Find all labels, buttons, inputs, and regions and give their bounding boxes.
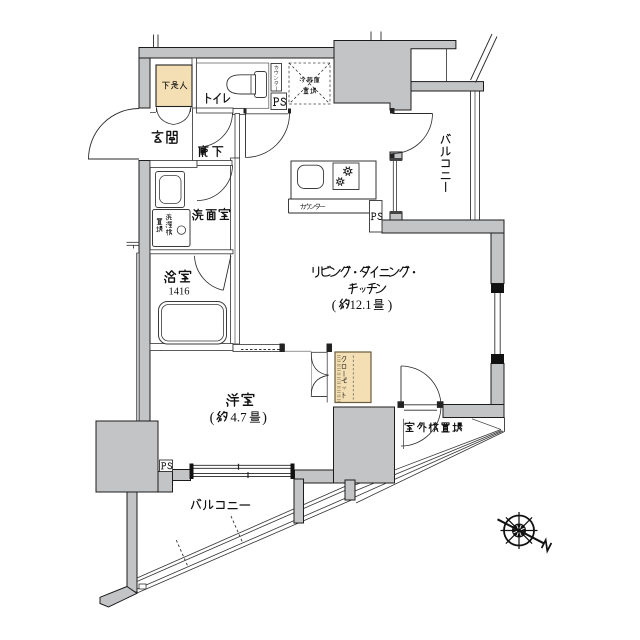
svg-text:): ): [388, 299, 393, 314]
svg-text:12.1: 12.1: [350, 298, 372, 312]
svg-text:1416: 1416: [169, 287, 190, 298]
svg-text:(: (: [332, 299, 337, 314]
svg-text:): ): [262, 410, 267, 426]
svg-text:(: (: [210, 410, 215, 426]
svg-text:4.7: 4.7: [230, 410, 247, 425]
